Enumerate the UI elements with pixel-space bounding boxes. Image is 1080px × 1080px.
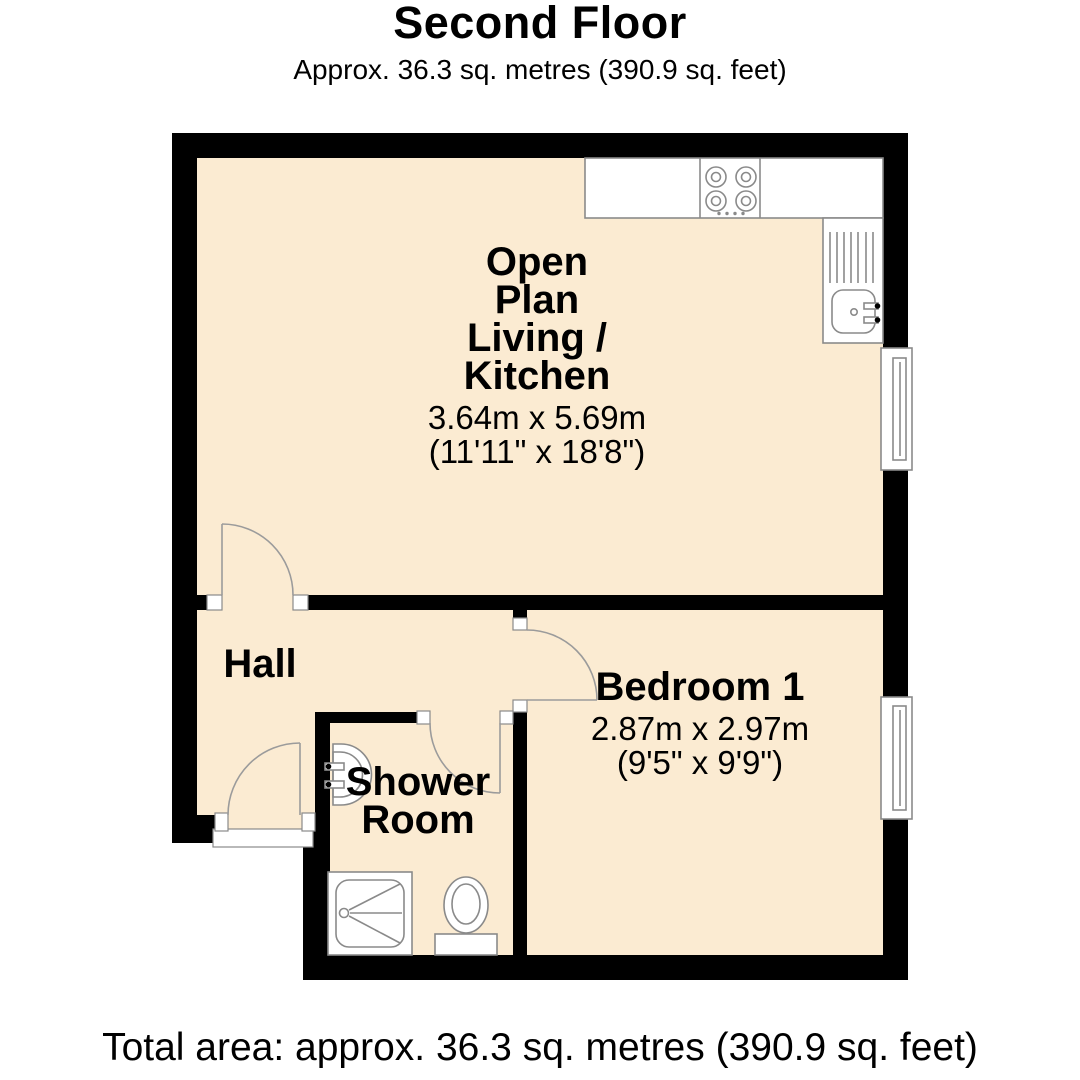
door-jamb: [513, 700, 527, 712]
page-subtitle: Approx. 36.3 sq. metres (390.9 sq. feet): [0, 56, 1080, 84]
wall-left: [172, 133, 197, 843]
door-jamb: [500, 711, 513, 724]
door-jamb: [207, 595, 222, 610]
shower-door-opening: [430, 712, 500, 723]
room-dimensions: 2.87m x 2.97m (9'5" x 9'9"): [550, 712, 850, 779]
total-area-text: Total area: approx. 36.3 sq. metres (390…: [0, 1028, 1080, 1067]
floorplan-page: Second Floor Approx. 36.3 sq. metres (39…: [0, 0, 1080, 1080]
header: Second Floor Approx. 36.3 sq. metres (39…: [0, 0, 1080, 84]
room-name: Shower Room: [318, 763, 518, 839]
room-name: Hall: [199, 645, 321, 683]
living-window-icon: [881, 348, 912, 470]
room-name: Open Plan Living / Kitchen: [387, 243, 687, 395]
living-door-opening: [222, 595, 293, 610]
door-jamb: [293, 595, 308, 610]
floorplan-drawing: [0, 0, 1080, 1080]
door-jamb: [417, 711, 430, 724]
living-room-label: Open Plan Living / Kitchen 3.64m x 5.69m…: [387, 243, 687, 468]
wall-top: [172, 133, 908, 158]
hall-label: Hall: [199, 645, 321, 683]
wall-shower-left-lower: [303, 843, 330, 980]
entrance-door-opening: [228, 813, 302, 830]
door-jamb: [302, 813, 315, 831]
bedroom-label: Bedroom 1 2.87m x 2.97m (9'5" x 9'9"): [550, 668, 850, 779]
entrance-step: [213, 829, 313, 847]
bedroom-window-icon: [881, 697, 912, 819]
room-name: Bedroom 1: [550, 668, 850, 706]
bedroom-floor: [527, 610, 883, 955]
room-dimensions: 3.64m x 5.69m (11'11" x 18'8"): [387, 401, 687, 468]
door-jamb: [513, 618, 527, 630]
wall-bottom: [305, 955, 908, 980]
page-title: Second Floor: [0, 0, 1080, 45]
wall-right: [883, 158, 908, 980]
shower-room-label: Shower Room: [318, 763, 518, 839]
shower-tray-icon: [328, 872, 412, 955]
bedroom-door-opening: [513, 630, 527, 700]
door-jamb: [215, 813, 228, 831]
